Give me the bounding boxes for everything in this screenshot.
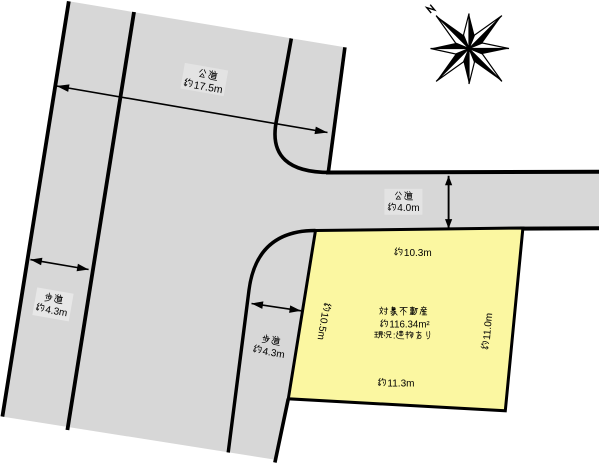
svg-text:4.0m: 4.0m	[397, 203, 419, 214]
svg-text:116.34m²: 116.34m²	[389, 319, 430, 330]
svg-text:10.3m: 10.3m	[404, 248, 432, 259]
svg-text:11.3m: 11.3m	[387, 379, 414, 390]
svg-text::: :	[393, 330, 396, 341]
svg-text:11.0m: 11.0m	[482, 312, 495, 340]
